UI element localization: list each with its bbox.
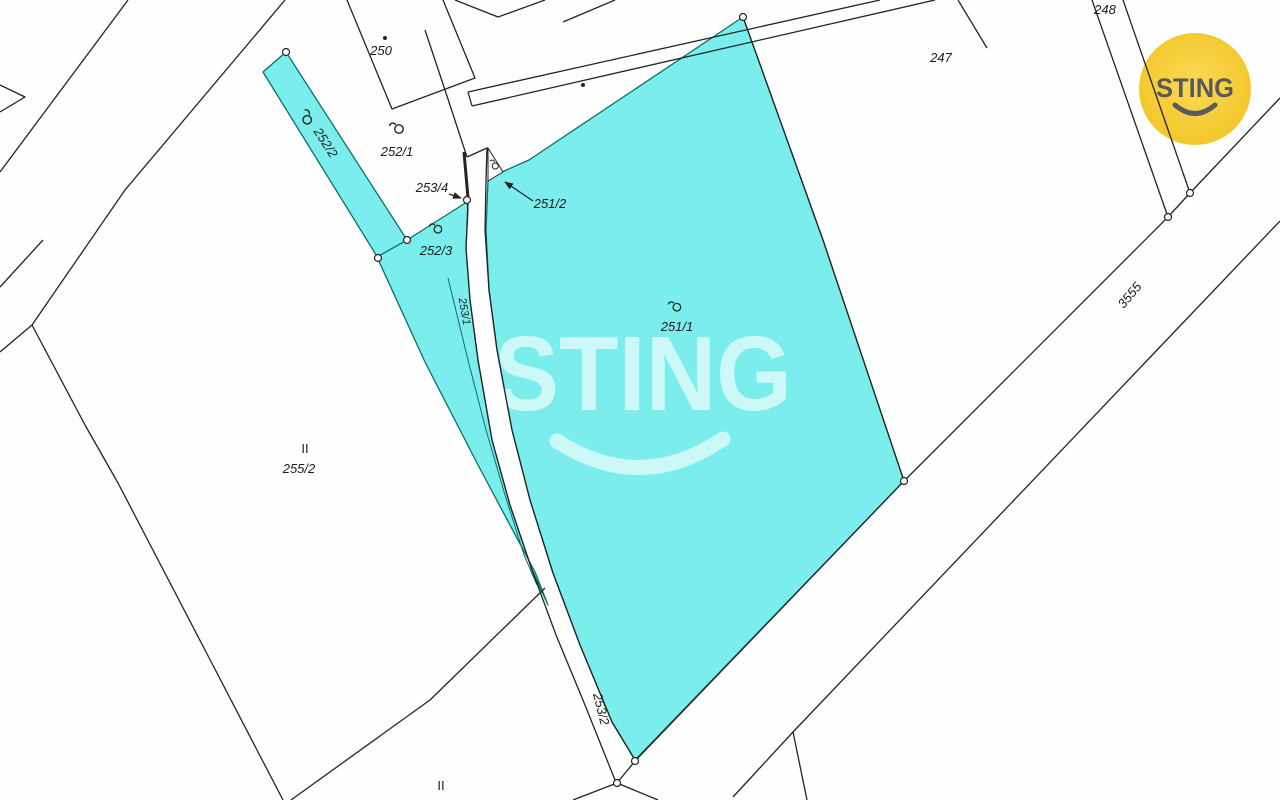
vertex-marker <box>901 478 908 485</box>
vertex-marker <box>1187 190 1194 197</box>
parcel-label-255-2: 255/2 <box>282 461 316 476</box>
cadastral-map-page: STING STING 250252/1253/4251/2252/3251/1… <box>0 0 1280 800</box>
vertex-marker <box>283 49 290 56</box>
parcel-label-247: 247 <box>929 50 952 65</box>
parcel-label-252-1: 252/1 <box>380 144 414 159</box>
vertex-marker <box>404 237 411 244</box>
parcel-label-252-3: 252/3 <box>419 243 453 258</box>
survey-dot <box>383 36 387 40</box>
vertex-marker <box>375 255 382 262</box>
parcel-label-251-2: 251/2 <box>533 196 567 211</box>
vertex-marker <box>1165 214 1172 221</box>
vertex-marker <box>632 758 639 765</box>
landuse-mark-255-2: II <box>301 441 308 456</box>
survey-dot <box>581 83 585 87</box>
watermark-text: STING <box>494 315 792 433</box>
vertex-marker <box>614 780 621 787</box>
vertex-marker <box>740 14 747 21</box>
cadastral-map-svg: STING STING 250252/1253/4251/2252/3251/1… <box>0 0 1280 800</box>
parcel-label-250: 250 <box>369 43 392 58</box>
vertex-marker <box>464 197 471 204</box>
sting-logo-text: STING <box>1156 73 1234 103</box>
parcel-label-248: 248 <box>1093 2 1116 17</box>
parcel-label-253-4: 253/4 <box>415 180 449 195</box>
parcel-label-251-1: 251/1 <box>660 319 694 334</box>
landuse-mark-bottom: II <box>437 778 444 793</box>
